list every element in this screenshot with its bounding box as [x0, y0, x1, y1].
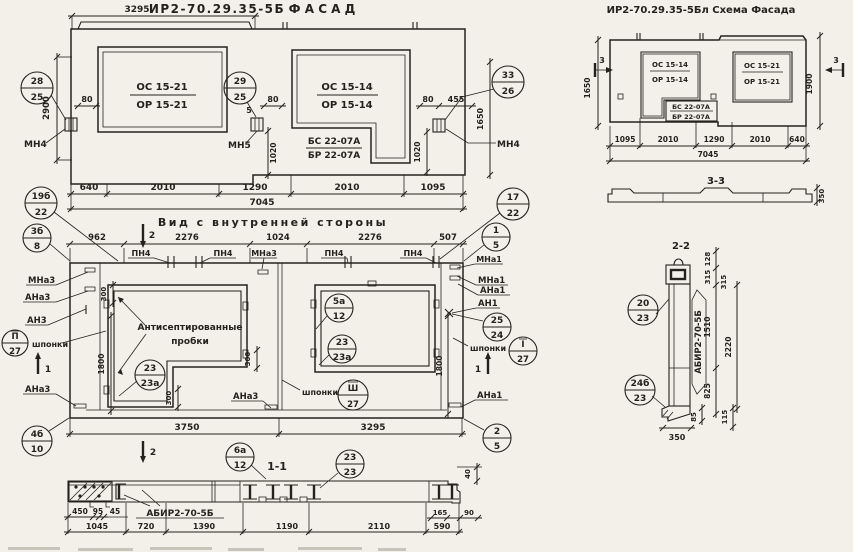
dim-label: 85: [690, 412, 698, 422]
ana3-label: АНа3: [233, 392, 258, 402]
panel-foot: [662, 406, 690, 421]
section-marker-icon: 2: [140, 441, 156, 463]
ibeam-icon: [307, 485, 321, 499]
dim-label: 2010: [658, 135, 679, 144]
dim-label: 115: [721, 410, 729, 425]
mna3-label: МНа3: [28, 276, 55, 286]
dim-chain: [659, 425, 695, 431]
callout-top: 23: [336, 338, 349, 348]
dim-label: 3295: [124, 5, 149, 15]
anchor-bracket-icon: [265, 405, 277, 409]
section-marker-icon: 3: [825, 56, 843, 77]
dim-label: 640: [80, 183, 99, 193]
dim-label: 507: [439, 233, 457, 243]
callout-circle: I 27: [509, 337, 537, 365]
window-mark: ОС 15-14: [652, 61, 688, 69]
callout-top: П: [11, 332, 18, 342]
dim-chain: [474, 463, 480, 485]
dim-label: 1020: [269, 143, 278, 164]
schema-view: ИР2-70.29.35-5Бл Схема Фасада ОС 15-14 О…: [583, 5, 843, 164]
callout-bottom: 12: [234, 461, 247, 471]
mna1-label: МНа1: [478, 276, 505, 286]
section-marker-icon: 1: [35, 352, 51, 375]
dim-label: 315: [704, 270, 712, 285]
facade-view: ИР2-70.29.35-5Б Ф А С А Д 3295 ОС 15-21 …: [21, 2, 524, 212]
section-title: 1-1: [267, 460, 287, 473]
facade-top-strip: [78, 22, 252, 29]
callout-circle: 25 24: [452, 313, 511, 341]
dim-label: 300: [165, 391, 173, 406]
dim-chain: [817, 32, 823, 130]
section-3-3: 3-3 350: [608, 176, 826, 206]
mna1-label: МНа1: [476, 255, 502, 264]
section-2-2: 2-2 АБИР2-70-5Б 128 315 315 1510 2220 82…: [625, 241, 740, 442]
dim-label: 962: [88, 233, 106, 243]
dim-label: 2900: [42, 96, 52, 120]
section-number: 2: [150, 448, 156, 458]
dim-label: 1800: [97, 354, 106, 375]
callout-top: I: [521, 340, 524, 350]
callout-circle: 17 22: [440, 188, 529, 259]
dim-label: 2010: [334, 183, 359, 193]
dim-label: 455: [448, 95, 465, 104]
window-mark: ОС 15-21: [744, 62, 780, 70]
balcony-mark: БС 22-07А: [672, 103, 710, 111]
pn4-label: ПН4: [214, 249, 233, 258]
callout-bottom: 8: [34, 242, 40, 252]
callout-top: 1: [493, 226, 499, 236]
balcony-mark: БР 22-07А: [308, 151, 360, 161]
mna3-label: МНа3: [251, 249, 277, 258]
section-title: 3-3: [707, 176, 725, 187]
ana3-label: АНа3: [25, 293, 50, 303]
blueprint-sheet: ИР2-70.29.35-5Б Ф А С А Д 3295 ОС 15-21 …: [0, 0, 853, 552]
pn4-label: ПН4: [132, 249, 151, 258]
window-mark: ОР 15-14: [321, 100, 372, 111]
callout-bottom: 23: [637, 314, 650, 324]
dim-label: 1095: [615, 135, 636, 144]
dim-label: 7045: [249, 198, 274, 208]
callout-top: 19б: [32, 191, 51, 202]
dim-label: 2220: [724, 337, 733, 358]
callout-top: 17: [507, 193, 520, 203]
anchor-bracket-icon: [85, 268, 95, 291]
dim-label: 1650: [583, 78, 592, 99]
callout-top: 2: [494, 427, 500, 437]
dim-label: 300: [100, 287, 108, 302]
callout-circle: 20 23: [628, 295, 669, 325]
dim-chain: [175, 385, 181, 411]
anchor-mark-icon: [251, 118, 263, 131]
callout-circle: 2 5: [464, 419, 511, 452]
callout-bottom: 23а: [141, 379, 160, 389]
callout-top: 3б: [31, 226, 44, 237]
balcony-mark: БР 22-07А: [672, 113, 710, 121]
callout-top: 20: [637, 299, 650, 309]
dim-label: 590: [434, 522, 451, 531]
callout-circle: П 27: [2, 330, 28, 357]
dim-label: 7045: [698, 150, 719, 159]
callout-bottom: 25: [234, 93, 247, 103]
dim-label: 640: [789, 135, 805, 144]
callout-bottom: 27: [347, 400, 359, 410]
dim-chain: [713, 247, 719, 418]
schema-title: ИР2-70.29.35-5Бл Схема Фасада: [607, 5, 796, 16]
an3-label: АН3: [27, 316, 47, 326]
callout-bottom: 27: [9, 347, 21, 357]
pn4-label: ПН4: [325, 249, 344, 258]
beam-section: [666, 265, 690, 284]
dim-chain: [730, 404, 736, 431]
dim-label: 2010: [750, 135, 771, 144]
dim-label: 450: [72, 507, 88, 516]
callout-top: 24б: [631, 378, 650, 389]
balcony-mark: БС 22-07А: [308, 137, 360, 147]
an1-label: АН1: [478, 299, 498, 309]
section-1-1: 1-1 6а 12 23 23: [64, 443, 482, 535]
anchor-label: МН4: [497, 140, 520, 150]
callout-bottom: 5: [493, 241, 499, 251]
dim-label: 165: [433, 509, 448, 517]
panel-section-body: [669, 284, 690, 406]
dim-label: 1095: [420, 183, 445, 193]
callout-circle: 3б 8: [23, 224, 70, 261]
callout-top: 6а: [234, 446, 246, 456]
callout-top: 25: [491, 316, 504, 326]
scan-artifacts: [8, 547, 406, 551]
callout-bottom: 22: [507, 209, 520, 219]
dim-label: 350: [669, 433, 686, 442]
inner-title: Вид с внутренней стороны: [158, 216, 388, 229]
anchor-bracket-icon: [449, 403, 461, 407]
callout-bottom: 5: [494, 442, 500, 452]
dim-label: 315: [720, 275, 728, 290]
facade-title: Ф А С А Д: [289, 2, 356, 16]
dim-label: 2276: [358, 233, 382, 243]
anchor-square-icon: [711, 94, 716, 99]
dim-chain: [66, 431, 466, 437]
inner-panel-outline: [70, 263, 463, 418]
window-mark: ОР 15-14: [652, 76, 688, 84]
callout-bottom: 23: [634, 394, 647, 404]
dim-label: 90: [464, 509, 474, 517]
callout-circle: 23 23а: [119, 360, 165, 396]
callout-top: 23: [144, 364, 157, 374]
section-marker-icon: 1: [475, 352, 491, 375]
section-title: 2-2: [672, 241, 690, 252]
window-mark: ОС 15-21: [136, 82, 187, 93]
dim-chain: [595, 36, 601, 130]
callout-top: 4б: [31, 429, 44, 440]
callout-bottom: 12: [333, 312, 346, 322]
dim-chain: [487, 58, 493, 179]
dim-label: 3295: [360, 423, 385, 433]
dim-label: 720: [138, 522, 155, 531]
dim-label: 1045: [86, 522, 109, 531]
dim-label: 2110: [368, 522, 391, 531]
callout-circle: 23 23а: [319, 335, 356, 365]
ana1-label: АНа1: [480, 286, 505, 296]
callout-top: 33: [502, 71, 515, 81]
dim-label: 80: [267, 95, 279, 104]
callout-top: 29: [234, 77, 247, 87]
dim-label: 1900: [805, 74, 814, 95]
anchor-cross-icon: [445, 309, 453, 317]
shponki-label: шпонки: [32, 340, 68, 349]
beam-label: АБИР2-70-5Б: [146, 509, 213, 519]
window-mark: ОР 15-21: [136, 100, 187, 111]
dim-chain: [445, 312, 451, 418]
anchor-bracket-icon: [450, 265, 460, 280]
dim-label: 350: [818, 189, 826, 204]
dim-label: 2276: [175, 233, 199, 243]
callout-circle: 4б 10: [22, 418, 69, 456]
pn4-label: ПН4: [404, 249, 423, 258]
dim-label: 1650: [476, 107, 485, 130]
dim-label: 300: [244, 352, 252, 367]
dim-label: 825: [703, 383, 712, 399]
note-text: пробки: [171, 336, 209, 347]
callout-circle: 24б 23: [625, 375, 665, 407]
lifting-hook-icon: [674, 259, 683, 265]
dim-label: 45: [110, 507, 120, 516]
dim-label: 1290: [242, 183, 267, 193]
dim-chain: [699, 404, 705, 425]
section-number: 1: [475, 365, 481, 375]
section-number: 1: [45, 365, 51, 375]
dim-label: 1290: [704, 135, 725, 144]
dim-label: 1390: [193, 522, 216, 531]
ibeam-icon: [432, 485, 446, 499]
callout-circle: 23 23: [320, 450, 364, 488]
shponki-label: шпонки: [302, 388, 338, 397]
section-profile: [608, 188, 812, 202]
callout-bottom: 26: [502, 87, 515, 97]
dim-label: 80: [81, 95, 93, 104]
note-text: Антисептированные: [138, 323, 243, 333]
callout-bottom: 25: [31, 93, 44, 103]
inner-view: Вид с внутренней стороны 962 2276 1024 2…: [2, 187, 537, 463]
schema-window-right: [733, 52, 792, 102]
dim-chain: [108, 312, 114, 415]
dim-label: 40: [464, 469, 472, 479]
section-number: 3: [833, 56, 839, 65]
dim-label: 3750: [174, 423, 199, 433]
anchor-bracket-icon: [258, 270, 268, 274]
dim-chain: [254, 346, 260, 372]
band-outline: [68, 481, 460, 503]
anchor-mark-icon: [433, 119, 445, 132]
window-mark: ОР 15-21: [744, 78, 780, 86]
callout-top: 5а: [333, 297, 345, 307]
channel-icon: [116, 484, 126, 499]
callout-bottom: 24: [491, 331, 504, 341]
dim-label: 1024: [266, 233, 290, 243]
callout-top: 23: [344, 453, 357, 463]
callout-bottom: 23: [344, 468, 357, 478]
anchor-label: МН4: [24, 140, 47, 150]
dim-label: 5: [246, 106, 252, 115]
callout-bottom: 27: [517, 355, 529, 365]
callout-bottom: 23а: [333, 353, 352, 363]
dim-label: 1020: [413, 142, 422, 163]
dim-chain: [64, 529, 463, 535]
dim-label: 2010: [150, 183, 175, 193]
dim-label: 1190: [276, 522, 299, 531]
facade-code: ИР2-70.29.35-5Б: [149, 2, 285, 16]
dim-label: 1510: [703, 317, 712, 338]
ana1-label: АНа1: [477, 391, 502, 401]
dim-chain: [734, 281, 740, 413]
callout-top: 28: [31, 77, 44, 87]
callout-bottom: 10: [31, 445, 44, 455]
shponki-label: шпонки: [470, 344, 506, 353]
section-number: 2: [149, 231, 155, 241]
drawing-canvas: ИР2-70.29.35-5Б Ф А С А Д 3295 ОС 15-21 …: [0, 0, 853, 552]
ana3-label: АНа3: [25, 385, 50, 395]
callout-top: Ш: [348, 384, 359, 394]
dim-label: 80: [422, 95, 434, 104]
window-mark: ОС 15-14: [321, 82, 372, 93]
anchor-square-icon: [618, 94, 623, 99]
callout-bottom: 22: [35, 208, 48, 218]
ibeam-icon: [266, 485, 280, 499]
dim-label: 128: [704, 252, 712, 267]
section-number: 3: [599, 56, 605, 65]
dim-chain: [424, 128, 430, 176]
dim-label: 1800: [435, 356, 444, 377]
anchor-label: МН5: [228, 141, 251, 151]
callout-circle: 6а 12: [226, 443, 266, 479]
callout-circle: Ш 27: [338, 380, 368, 410]
ibeam-icon: [243, 485, 257, 499]
